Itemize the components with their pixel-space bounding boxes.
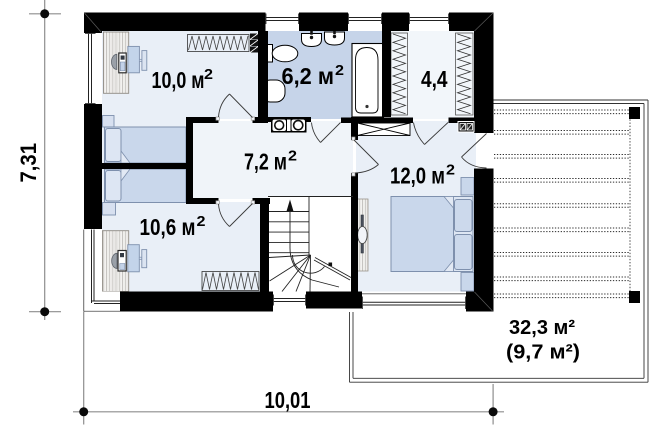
svg-text:2: 2 [288,149,297,165]
svg-text:2: 2 [204,67,213,83]
svg-text:7,31: 7,31 [16,143,41,183]
svg-text:10,6 м: 10,6 м [140,214,196,240]
svg-text:6,2 м: 6,2 м [282,63,335,89]
svg-text:2: 2 [335,63,344,79]
svg-text:10,01: 10,01 [265,387,311,413]
svg-text:2: 2 [197,214,206,230]
svg-text:10,0 м: 10,0 м [152,67,205,93]
svg-text:2: 2 [446,163,455,179]
svg-text:4,4: 4,4 [421,66,448,92]
svg-text:(9,7 м²): (9,7 м²) [506,341,580,364]
svg-text:7,2 м: 7,2 м [244,149,287,175]
svg-text:12,0 м: 12,0 м [390,163,445,189]
svg-text:32,3 м²: 32,3 м² [509,316,575,339]
